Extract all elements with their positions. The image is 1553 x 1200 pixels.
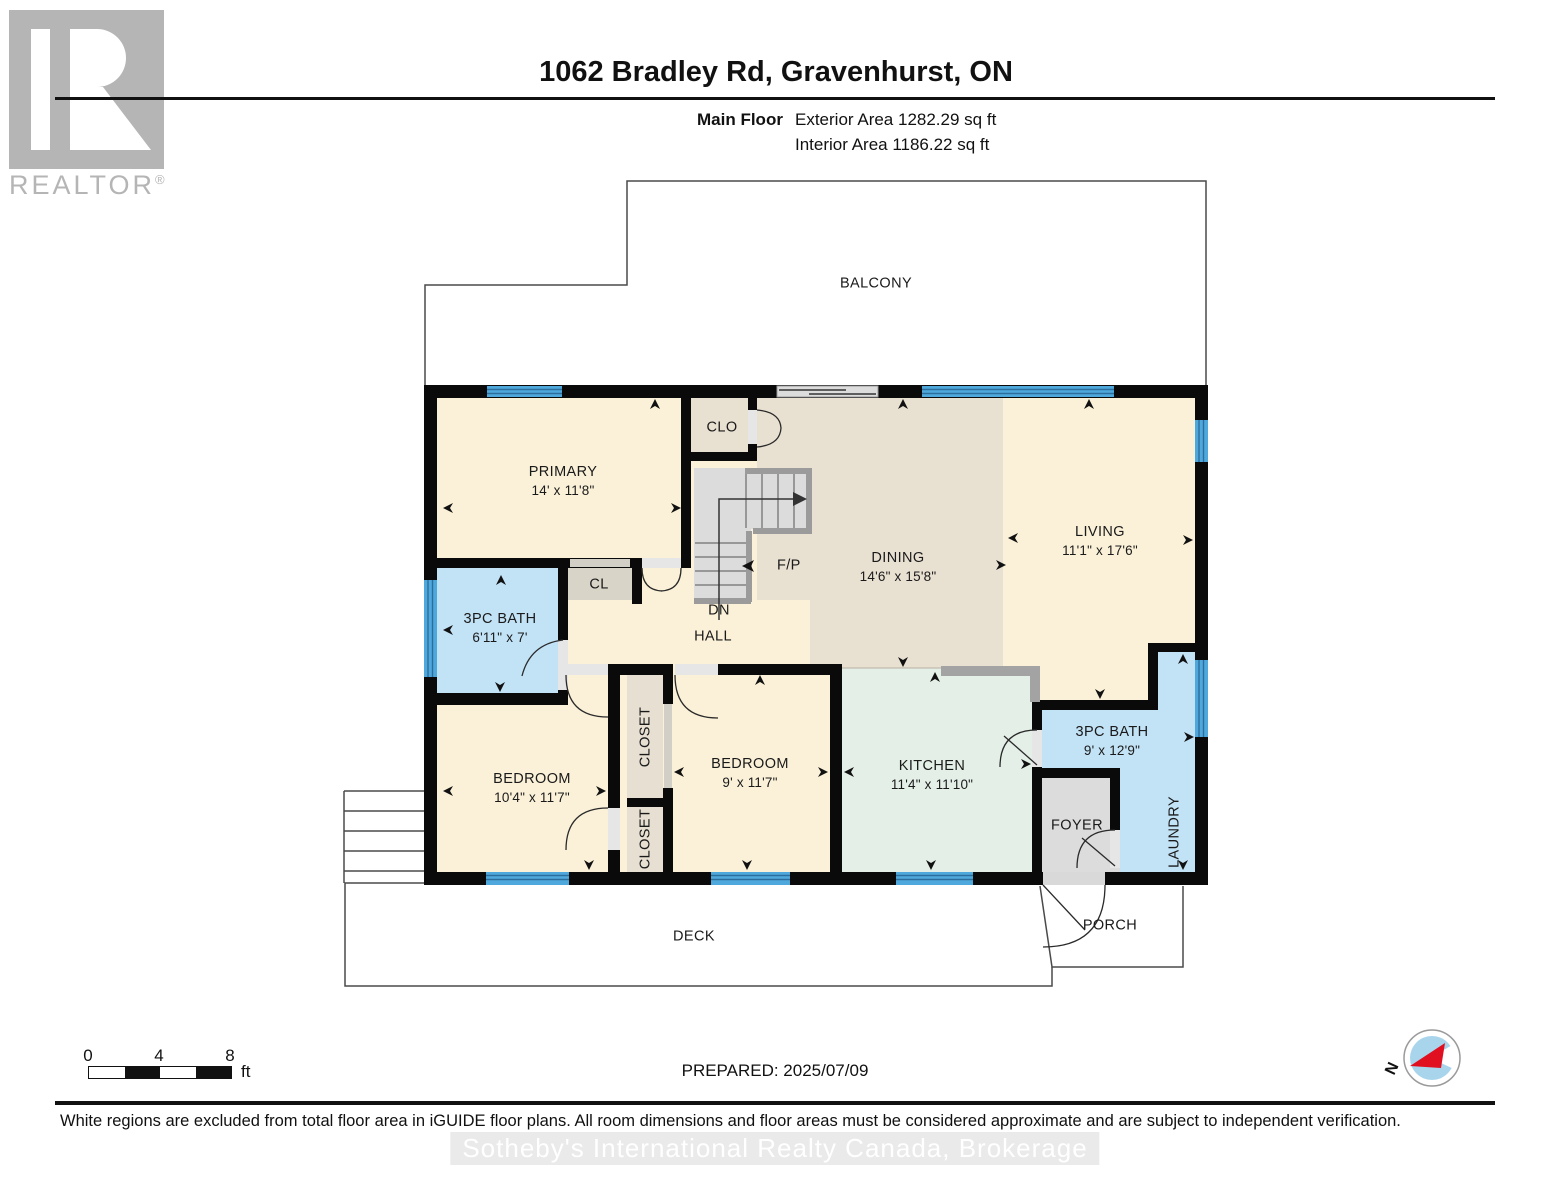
bath2-name: 3PC BATH (1075, 724, 1148, 740)
registered-mark: ® (155, 172, 168, 187)
scale-tick-4: 4 (154, 1046, 163, 1066)
bedroom2-name: BEDROOM (711, 756, 789, 772)
room-label-bedroom1: BEDROOM10'4" x 11'7" (493, 770, 571, 806)
realtor-logo-icon (9, 10, 164, 169)
closet-bottom-name: CLOSET (638, 809, 654, 869)
disclaimer-text: White regions are excluded from total fl… (60, 1112, 1480, 1131)
bedroom1-dims: 10'4" x 11'7" (493, 789, 571, 807)
stair-label-dn: DN (708, 602, 730, 621)
realtor-text: REALTOR (9, 170, 155, 200)
deck-name: DECK (673, 929, 715, 945)
balcony-outline (425, 181, 1206, 385)
room-label-porch: PORCH (1083, 917, 1137, 936)
balcony-name: BALCONY (840, 276, 912, 292)
room-label-primary: PRIMARY14' x 11'8" (529, 463, 598, 499)
compass-icon (1404, 1030, 1460, 1086)
cl-name: CL (589, 577, 608, 593)
scale-bar (88, 1066, 232, 1079)
room-label-deck: DECK (673, 928, 715, 947)
primary-name: PRIMARY (529, 464, 598, 480)
hall-name: HALL (694, 629, 732, 645)
closet-top-name: CLOSET (638, 707, 654, 767)
floor-plan-drawing (0, 0, 1553, 1200)
fireplace-label: F/P (777, 557, 801, 576)
room-label-clo: CLO (706, 419, 737, 438)
porch-name: PORCH (1083, 918, 1137, 934)
room-label-bath2: 3PC BATH9' x 12'9" (1075, 723, 1148, 759)
room-label-dining: DINING14'6" x 15'8" (860, 549, 937, 585)
room-label-bath-main: 3PC BATH6'11" x 7' (463, 610, 536, 646)
footer-divider (55, 1101, 1495, 1105)
scale-tick-0: 0 (83, 1046, 92, 1066)
bedroom2-dims: 9' x 11'7" (711, 774, 789, 792)
floor-label: Main Floor (697, 110, 783, 130)
dn-name: DN (708, 603, 730, 619)
foyer-name: FOYER (1051, 818, 1103, 834)
kitchen-name: KITCHEN (899, 758, 965, 774)
realtor-wordmark: REALTOR® (9, 170, 168, 201)
room-label-bedroom2: BEDROOM9' x 11'7" (711, 755, 789, 791)
page-title: 1062 Bradley Rd, Gravenhurst, ON (539, 56, 1013, 89)
bath2-dims: 9' x 12'9" (1075, 742, 1148, 760)
bath-main-dims: 6'11" x 7' (463, 629, 536, 647)
bedroom1-name: BEDROOM (493, 771, 571, 787)
room-label-balcony: BALCONY (840, 275, 912, 294)
interior-area: Interior Area 1186.22 sq ft (795, 135, 989, 155)
laundry-name: LAUNDRY (1167, 796, 1183, 868)
floor-plan-page: { "header": { "title": "1062 Bradley Rd,… (0, 0, 1553, 1200)
prepared-date: PREPARED: 2025/07/09 (682, 1061, 869, 1081)
dining-dims: 14'6" x 15'8" (860, 568, 937, 586)
room-label-kitchen: KITCHEN11'4" x 11'10" (891, 757, 973, 793)
room-label-living: LIVING11'1" x 17'6" (1062, 523, 1138, 559)
brokerage-watermark: Sotheby's International Realty Canada, B… (450, 1132, 1099, 1165)
fp-name: F/P (777, 558, 801, 574)
room-label-hall: HALL (694, 628, 732, 647)
title-divider (55, 97, 1495, 100)
living-dims: 11'1" x 17'6" (1062, 542, 1138, 560)
scale-unit: ft (241, 1062, 250, 1082)
exterior-area: Exterior Area 1282.29 sq ft (795, 110, 996, 130)
clo-name: CLO (706, 420, 737, 436)
dining-name: DINING (871, 550, 924, 566)
room-label-laundry: LAUNDRY (1166, 796, 1185, 868)
room-label-closet-bottom: CLOSET (637, 809, 656, 869)
living-name: LIVING (1075, 524, 1125, 540)
sliding-door (777, 386, 878, 397)
room-label-cl: CL (589, 576, 608, 595)
primary-dims: 14' x 11'8" (529, 482, 598, 500)
bath-main-name: 3PC BATH (463, 611, 536, 627)
kitchen-dims: 11'4" x 11'10" (891, 776, 973, 794)
scale-tick-8: 8 (225, 1046, 234, 1066)
room-label-closet-top: CLOSET (637, 707, 656, 767)
room-label-foyer: FOYER (1051, 817, 1103, 836)
